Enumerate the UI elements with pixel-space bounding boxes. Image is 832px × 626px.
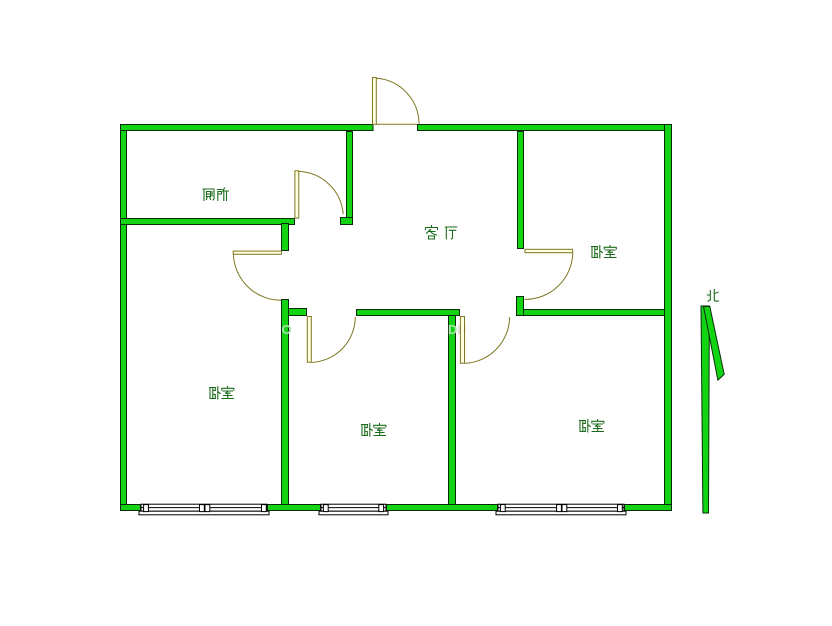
svg-text:D: D bbox=[448, 322, 457, 337]
svg-text:O: O bbox=[282, 322, 292, 337]
